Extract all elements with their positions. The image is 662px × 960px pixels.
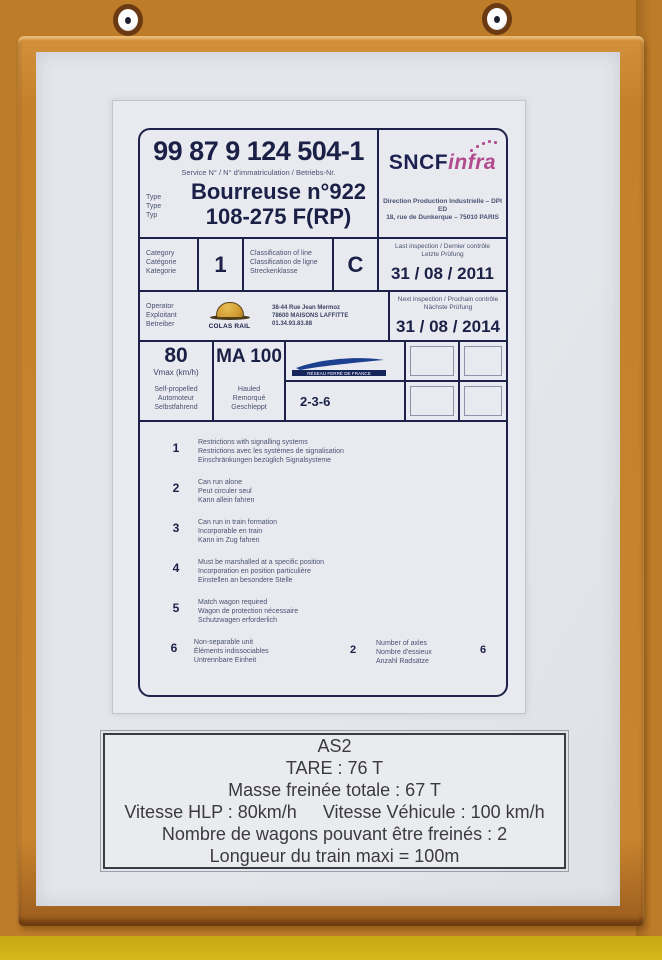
category-value: 1 bbox=[197, 239, 242, 290]
restriction-item: 2 Can run alone Peut circuler seul Kann … bbox=[154, 478, 506, 505]
rff-logo-cell: RÉSEAU FERRÉ DE FRANCE bbox=[286, 342, 404, 380]
hauled-speed-value: MA 100 bbox=[214, 346, 284, 368]
hauled-label: Hauled Remorqué Geschleppt bbox=[214, 385, 284, 412]
infra-speed-dots-icon bbox=[470, 140, 500, 152]
operator-label: Operator Exploitant Betreiber bbox=[140, 292, 197, 340]
line-classification-value: C bbox=[332, 239, 377, 290]
route-codes-value: 2-3-6 bbox=[286, 382, 404, 420]
grommet-pin bbox=[494, 16, 500, 23]
rff-swoosh-icon: RÉSEAU FERRÉ DE FRANCE bbox=[292, 358, 386, 376]
restriction-text: Can run alone Peut circuler seul Kann al… bbox=[198, 478, 348, 505]
sncf-address: Direction Production Industrielle – DPI … bbox=[379, 198, 506, 222]
restriction-item: 1 Restrictions with signalling systems R… bbox=[154, 438, 506, 465]
rff-logo: RÉSEAU FERRÉ DE FRANCE bbox=[292, 346, 398, 376]
operator-address: 38-44 Rue Jean Mermoz 78600 MAISONS LAFF… bbox=[262, 292, 388, 340]
vehicle-number-cell: 99 87 9 124 504-1 Service N° / N° d'imma… bbox=[140, 130, 377, 237]
next-inspection-date: 31 / 08 / 2014 bbox=[390, 317, 506, 337]
restriction-text: Non-separable unit Éléments indissociabl… bbox=[194, 638, 330, 666]
max-train-length-line: Longueur du train maxi = 100m bbox=[105, 845, 564, 867]
restriction-text: Restrictions with signalling systems Res… bbox=[198, 438, 348, 465]
as2-braking-panel: AS2 TARE : 76 T Masse freinée totale : 6… bbox=[103, 733, 566, 869]
paper-sheet: 99 87 9 124 504-1 Service N° / N° d'imma… bbox=[36, 52, 620, 906]
last-inspection-label: Last inspection / Dernier contrôle Letzt… bbox=[379, 243, 506, 259]
speed-hlp: Vitesse HLP : 80km/h bbox=[124, 801, 296, 823]
colas-rail-logo: COLAS RAIL bbox=[197, 292, 262, 340]
restriction-number: 1 bbox=[154, 438, 198, 465]
sncf-infra-cell: SNCFinfra Direction Production Industrie… bbox=[377, 130, 506, 237]
svg-text:RÉSEAU FERRÉ DE FRANCE: RÉSEAU FERRÉ DE FRANCE bbox=[307, 370, 371, 376]
network-grid: RÉSEAU FERRÉ DE FRANCE 2-3-6 bbox=[284, 342, 506, 420]
restriction-number: 4 bbox=[154, 558, 198, 585]
empty-cell bbox=[404, 382, 458, 420]
empty-cell bbox=[458, 342, 506, 380]
restriction-number: 2 bbox=[154, 478, 198, 505]
line-classification-label: Classification of line Classification de… bbox=[242, 239, 332, 290]
vmax-cell: 80 Vmax (km/h) Self-propelled Automoteur… bbox=[140, 342, 212, 420]
restriction-item: 5 Match wagon required Wagon de protecti… bbox=[154, 598, 506, 625]
as2-title: AS2 bbox=[105, 735, 564, 757]
restrictions-section: 1 Restrictions with signalling systems R… bbox=[140, 420, 506, 695]
restriction-number: 3 bbox=[154, 518, 198, 545]
grommet-disc bbox=[487, 8, 507, 30]
last-inspection-cell: Last inspection / Dernier contrôle Letzt… bbox=[377, 239, 506, 290]
last-inspection-date: 31 / 08 / 2011 bbox=[379, 264, 506, 284]
restriction-text: Must be marshalled at a specific positio… bbox=[198, 558, 348, 585]
hauled-speed-cell: MA 100 Hauled Remorqué Geschleppt bbox=[212, 342, 284, 420]
hard-hat-icon bbox=[210, 302, 250, 320]
category-label: Category Catégorie Kategorie bbox=[140, 239, 197, 290]
uic-number: 99 87 9 124 504-1 bbox=[140, 136, 377, 167]
next-inspection-cell: Next inspection / Prochain contrôle Näch… bbox=[388, 292, 506, 340]
id-plate-table: 99 87 9 124 504-1 Service N° / N° d'imma… bbox=[138, 128, 508, 697]
plate-holder-frame: 99 87 9 124 504-1 Service N° / N° d'imma… bbox=[18, 36, 644, 926]
restriction-text: Match wagon required Wagon de protection… bbox=[198, 598, 348, 625]
empty-cell bbox=[404, 342, 458, 380]
braked-mass-line: Masse freinée totale : 67 T bbox=[105, 779, 564, 801]
vmax-unit: Vmax (km/h) bbox=[140, 368, 212, 377]
axles-label: Number of axles Nombre d'essieux Anzahl … bbox=[376, 638, 460, 666]
axles-value: 6 bbox=[460, 638, 506, 666]
grommet-disc bbox=[118, 9, 138, 31]
restriction-item: 3 Can run in train formation Incorporabl… bbox=[154, 518, 506, 545]
restriction-item: 4 Must be marshalled at a specific posit… bbox=[154, 558, 506, 585]
photo-of-train-data-plate: { "plate": { "header": { "number": "99 8… bbox=[0, 0, 662, 960]
empty-cell bbox=[458, 382, 506, 420]
vehicle-yellow-band bbox=[0, 936, 662, 960]
non-separable-unit-value: 2 bbox=[330, 638, 376, 666]
restriction-number: 5 bbox=[154, 598, 198, 625]
speed-vehicle: Vitesse Véhicule : 100 km/h bbox=[323, 801, 545, 823]
mounting-grommet-left bbox=[113, 4, 143, 36]
speed-line: Vitesse HLP : 80km/h Vitesse Véhicule : … bbox=[105, 801, 564, 823]
grommet-pin bbox=[125, 17, 131, 24]
vehicle-type: Bourreuse n°922 108-275 F(RP) bbox=[180, 179, 377, 229]
self-propelled-label: Self-propelled Automoteur Selbstfahrend bbox=[140, 385, 212, 412]
next-inspection-label: Next inspection / Prochain contrôle Näch… bbox=[390, 296, 506, 312]
braked-wagons-line: Nombre de wagons pouvant être freinés : … bbox=[105, 823, 564, 845]
restriction-text: Can run in train formation Incorporable … bbox=[198, 518, 348, 545]
restriction-item: 6 Non-separable unit Éléments indissocia… bbox=[154, 638, 506, 666]
route-codes-cell: 2-3-6 bbox=[286, 382, 404, 420]
tare-line: TARE : 76 T bbox=[105, 757, 564, 779]
restriction-number: 6 bbox=[154, 638, 194, 666]
mounting-grommet-right bbox=[482, 3, 512, 35]
vmax-value: 80 bbox=[140, 344, 212, 368]
uic-number-caption: Service N° / N° d'immatriculation / Betr… bbox=[140, 168, 377, 177]
id-plate-sheet: 99 87 9 124 504-1 Service N° / N° d'imma… bbox=[112, 100, 526, 714]
type-label: Type Type Typ bbox=[140, 179, 180, 229]
sncf-infra-logo: SNCFinfra bbox=[389, 152, 496, 174]
